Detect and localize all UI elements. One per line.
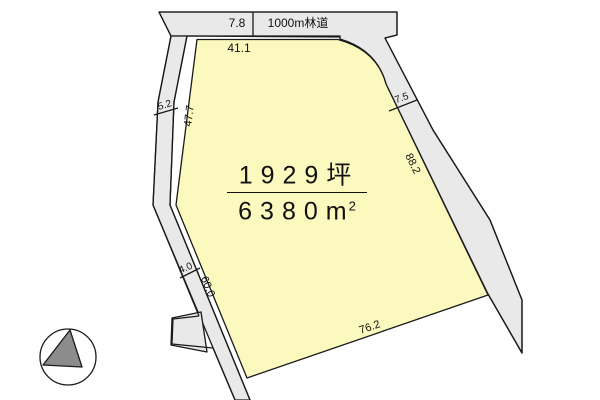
top-road-name-label: 1000m林道 xyxy=(268,17,329,29)
north-arrow-compass-icon xyxy=(40,329,96,385)
top-road-width-label: 7.8 xyxy=(229,17,246,29)
dim-top-edge: 41.1 xyxy=(227,42,250,54)
area-m2-value: 6380m xyxy=(238,198,354,226)
land-plot-map: 7.8 1000m林道 41.1 5.2 47.7 7.5 88.2 4.0 6… xyxy=(0,0,600,400)
area-m2-superscript: 2 xyxy=(349,198,356,213)
parcel-area-tsubo: 1929坪 xyxy=(239,164,360,189)
parcel-area-m2: 6380m2 xyxy=(238,199,356,224)
area-divider-line xyxy=(227,192,367,193)
